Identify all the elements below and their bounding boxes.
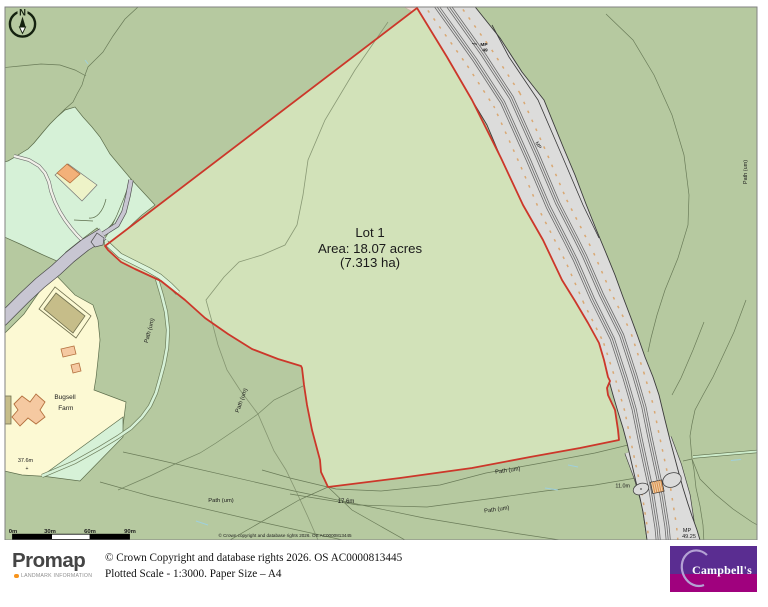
svg-text:17.6m: 17.6m [338, 499, 355, 505]
svg-text:Area: 18.07 acres: Area: 18.07 acres [318, 241, 423, 256]
svg-text:37.6m: 37.6m [18, 458, 34, 464]
svg-text:+: + [26, 466, 29, 472]
svg-text:90m: 90m [124, 529, 136, 535]
svg-text:© Crown copyright and database: © Crown copyright and database rights 20… [218, 532, 352, 538]
svg-text:60m: 60m [84, 529, 96, 535]
svg-text:49: 49 [482, 48, 488, 54]
svg-text:Farm: Farm [58, 405, 73, 412]
svg-text:(7.313 ha): (7.313 ha) [340, 255, 400, 270]
svg-text:Path (um): Path (um) [743, 160, 749, 184]
svg-text:30m: 30m [44, 529, 56, 535]
svg-text:Lot 1: Lot 1 [355, 225, 384, 240]
svg-text:11.0m: 11.0m [615, 484, 630, 490]
svg-text:MP: MP [480, 42, 488, 48]
svg-text:Bugsell: Bugsell [54, 394, 76, 401]
svg-text:Path (um): Path (um) [208, 498, 234, 504]
svg-text:0m: 0m [9, 529, 18, 535]
